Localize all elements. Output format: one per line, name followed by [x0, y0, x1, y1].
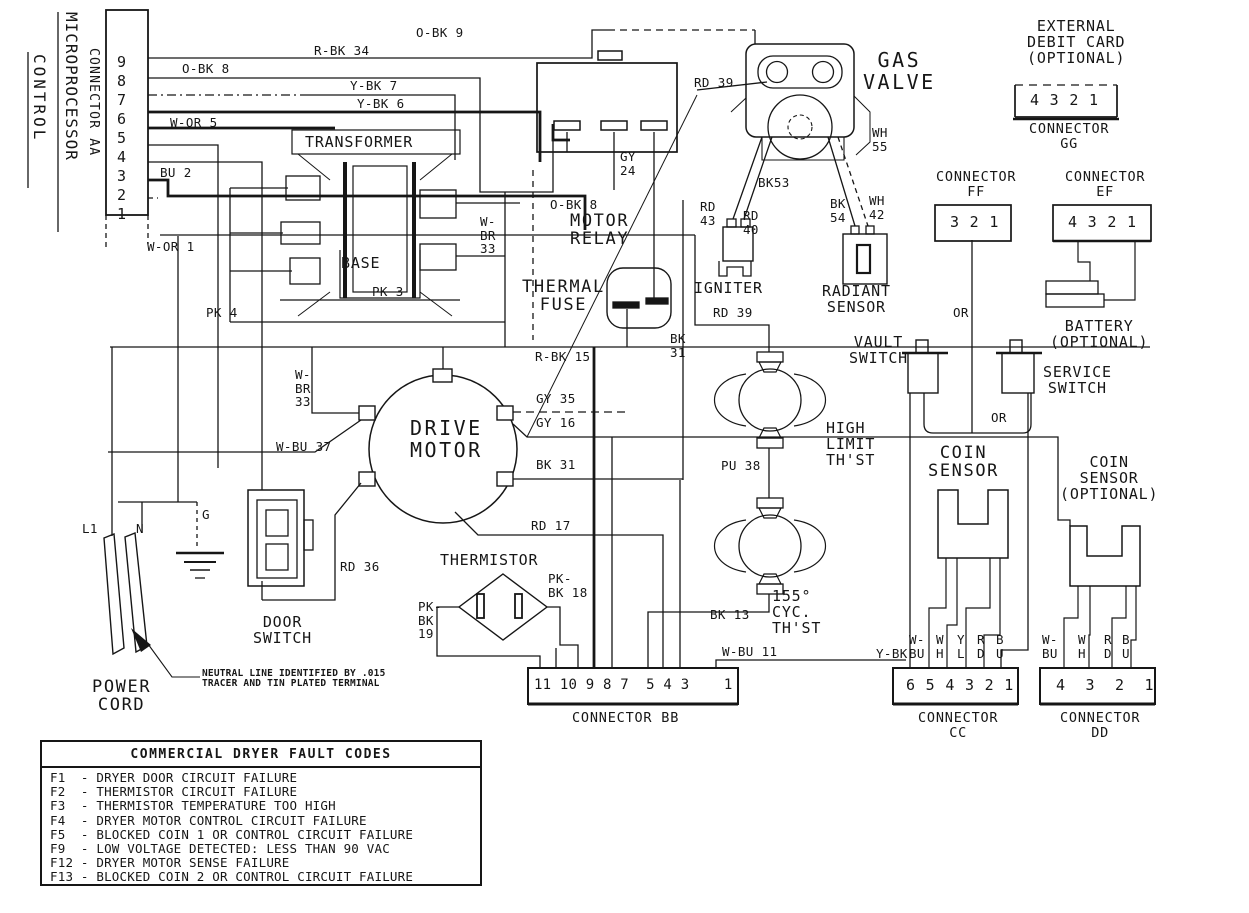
aa-pin-6: 6: [117, 111, 127, 127]
coin-sensor-symbol: [938, 490, 1008, 558]
wire-w-br-33-motor: W- BR 33: [295, 368, 311, 409]
power-n: N: [136, 522, 144, 536]
ground-symbol: [176, 553, 224, 578]
label-power-cord: POWER CORD: [92, 678, 151, 715]
wire-o-bk-8-top: O-BK 8: [182, 62, 230, 76]
label-high-limit: HIGH LIMIT TH'ST: [826, 420, 875, 469]
label-coin-sensor-opt: COIN SENSOR (OPTIONAL): [1060, 454, 1158, 503]
aa-pin-2: 2: [117, 187, 127, 203]
label-coin-sensor: COIN SENSOR: [928, 444, 999, 481]
power-g: G: [202, 508, 210, 522]
label-drive-motor: DRIVE MOTOR: [410, 418, 483, 461]
label-connector-ff: CONNECTOR FF: [936, 170, 1016, 199]
wire-gy-35: GY 35: [536, 392, 576, 406]
connector-bb-pins: 11 10 9 8 7 5 4 3 1: [534, 678, 732, 693]
fault-code-row-f13: F13 - BLOCKED COIN 2 OR CONTROL CIRCUIT …: [50, 870, 480, 884]
wire-bu-2: BU 2: [160, 166, 192, 180]
label-motor-relay: MOTOR RELAY: [570, 212, 629, 249]
connector-ef-pins: 4 3 2 1: [1068, 214, 1137, 230]
high-limit-thermostat-symbol: [715, 352, 826, 448]
wire-rd-36: RD 36: [340, 560, 380, 574]
label-external-debit: EXTERNAL DEBIT CARD (OPTIONAL): [1027, 18, 1125, 67]
fault-code-row-f1: F1 - DRYER DOOR CIRCUIT FAILURE: [50, 771, 480, 785]
coin-sensor-optional-symbol: [1070, 526, 1140, 586]
fault-code-row-f12: F12 - DRYER MOTOR SENSE FAILURE: [50, 856, 480, 870]
wire-w-or-5: W-OR 5: [170, 116, 218, 130]
label-door-switch: DOOR SWITCH: [253, 614, 312, 646]
label-thermal-fuse: THERMAL FUSE: [522, 278, 605, 315]
motor-relay-symbol: [537, 51, 677, 152]
wire-o-bk-8-relay: O-BK 8: [550, 198, 598, 212]
wire-wh-42: WH 42: [869, 194, 885, 221]
wire-bk-13: BK 13: [710, 608, 750, 622]
wire-rd-43: RD 43: [700, 200, 716, 227]
thermal-fuse-symbol: [607, 268, 671, 328]
fault-codes-title: COMMERCIAL DRYER FAULT CODES: [42, 742, 480, 768]
radiant-sensor-symbol: [843, 226, 887, 284]
wire-cc-w-bu: W- BU: [909, 633, 925, 660]
wire-w-bu-11: W-BU 11: [722, 645, 777, 659]
aa-pin-3: 3: [117, 168, 127, 184]
fault-codes-rows: F1 - DRYER DOOR CIRCUIT FAILUREF2 - THER…: [42, 768, 480, 885]
wire-cc-wh: W H: [936, 633, 944, 660]
aa-pin-9: 9: [117, 54, 127, 70]
wire-o-bk-9: O-BK 9: [416, 26, 464, 40]
label-radiant-sensor: RADIANT SENSOR: [822, 283, 891, 315]
gas-valve-symbol: [731, 44, 870, 160]
wire-wh-55: WH 55: [872, 126, 888, 153]
connector-aa-title: CONNECTOR AA: [86, 48, 101, 156]
label-thermistor: THERMISTOR: [440, 552, 538, 568]
wire-dd-wh: W H: [1078, 633, 1086, 660]
wire-dd-w-bu: W- BU: [1042, 633, 1058, 660]
label-igniter: IGNITER: [694, 280, 763, 296]
label-service-switch: SERVICE SWITCH: [1043, 364, 1112, 396]
fault-code-row-f5: F5 - BLOCKED COIN 1 OR CONTROL CIRCUIT F…: [50, 828, 480, 842]
wire-cc-bu: B U: [996, 633, 1004, 660]
control-title: CONTROL: [30, 54, 49, 142]
aa-pin-8: 8: [117, 73, 127, 89]
wire-dd-bu: B U: [1122, 633, 1130, 660]
wire-pk-3: PK 3: [372, 285, 404, 299]
label-vault-switch: VAULT SWITCH: [849, 334, 908, 366]
power-cord-symbol: [104, 533, 151, 654]
wire-pk-bk-19: PK- BK 19: [418, 600, 442, 641]
cycling-thermostat-symbol: [715, 498, 826, 594]
wire-y-bk-7: Y-BK 7: [350, 79, 398, 93]
label-connector-gg: CONNECTOR GG: [1029, 122, 1109, 151]
label-battery: BATTERY (OPTIONAL): [1050, 318, 1148, 350]
connector-ff-pins: 3 2 1: [950, 214, 999, 230]
fault-codes-table: COMMERCIAL DRYER FAULT CODES F1 - DRYER …: [40, 740, 482, 886]
wire-bk53: BK53: [758, 176, 790, 190]
aa-pin-4: 4: [117, 149, 127, 165]
wire-r-bk-15: R-BK 15: [535, 350, 590, 364]
fault-code-row-f9: F9 - LOW VOLTAGE DETECTED: LESS THAN 90 …: [50, 842, 480, 856]
wire-rd-39-lower: RD 39: [713, 306, 753, 320]
microprocessor-title: MICROPROCESSOR: [62, 12, 81, 161]
label-connector-dd: CONNECTOR DD: [1060, 711, 1140, 740]
wire-w-or-1: W-OR 1: [147, 240, 195, 254]
wire-y-bk-cc: Y-BK: [876, 647, 908, 661]
connector-aa-box: [106, 10, 148, 215]
aa-pin-5: 5: [117, 130, 127, 146]
fault-code-row-f3: F3 - THERMISTOR TEMPERATURE TOO HIGH: [50, 799, 480, 813]
wire-pu-38: PU 38: [721, 459, 761, 473]
wire-pk-4: PK 4: [206, 306, 238, 320]
neutral-line-note: NEUTRAL LINE IDENTIFIED BY .015 TRACER A…: [202, 669, 386, 690]
wire-rd-39-top: RD 39: [694, 76, 734, 90]
label-base: BASE: [341, 255, 380, 271]
label-connector-cc: CONNECTOR CC: [918, 711, 998, 740]
power-l1: L1: [82, 522, 98, 536]
wiring-diagram-page: MICROPROCESSOR CONTROL CONNECTOR AA NEUT…: [0, 0, 1249, 913]
label-gas-valve: GAS VALVE: [863, 50, 936, 93]
wire-rd-40: RD 40: [743, 209, 759, 236]
wire-bk-31-vert: BK 31: [670, 332, 686, 359]
wire-cc-rd: R D: [977, 633, 985, 660]
wire-cc-yl: Y L: [957, 633, 965, 660]
fault-code-row-f2: F2 - THERMISTOR CIRCUIT FAILURE: [50, 785, 480, 799]
wire-rd-17: RD 17: [531, 519, 571, 533]
fault-code-row-f4: F4 - DRYER MOTOR CONTROL CIRCUIT FAILURE: [50, 814, 480, 828]
wire-gy-24: GY 24: [620, 150, 636, 177]
label-cyc-thst: 155° CYC. TH'ST: [772, 588, 821, 637]
vault-switch-symbol: [902, 340, 948, 393]
wire-w-bu-37: W-BU 37: [276, 440, 331, 454]
wire-gy-16: GY 16: [536, 416, 576, 430]
connector-gg-pins: 4 3 2 1: [1030, 92, 1099, 108]
thermistor-symbol: [459, 574, 547, 640]
aa-pin-1: 1: [117, 206, 127, 222]
door-switch-symbol: [248, 490, 313, 586]
wire-w-br-33-upper: W- BR 33: [480, 215, 496, 256]
label-connector-ef: CONNECTOR EF: [1065, 170, 1145, 199]
wire-dd-rd: R D: [1104, 633, 1112, 660]
connector-cc-pins: 6 5 4 3 2 1: [906, 677, 1014, 693]
wire-or-switch: OR: [991, 411, 1007, 425]
connector-dd-pins: 4 3 2 1: [1056, 677, 1154, 693]
wire-bk-31-horiz: BK 31: [536, 458, 576, 472]
service-switch-symbol: [996, 340, 1042, 393]
battery-symbol: [1046, 281, 1104, 307]
wire-or-ff: OR: [953, 306, 969, 320]
label-connector-bb: CONNECTOR BB: [572, 711, 679, 726]
wire-y-bk-6: Y-BK 6: [357, 97, 405, 111]
wire-bk-54: BK 54: [830, 197, 846, 224]
wire-r-bk-34: R-BK 34: [314, 44, 369, 58]
wire-pk-bk-18: PK- BK 18: [548, 572, 588, 599]
aa-pin-7: 7: [117, 92, 127, 108]
label-transformer: TRANSFORMER: [305, 134, 413, 150]
